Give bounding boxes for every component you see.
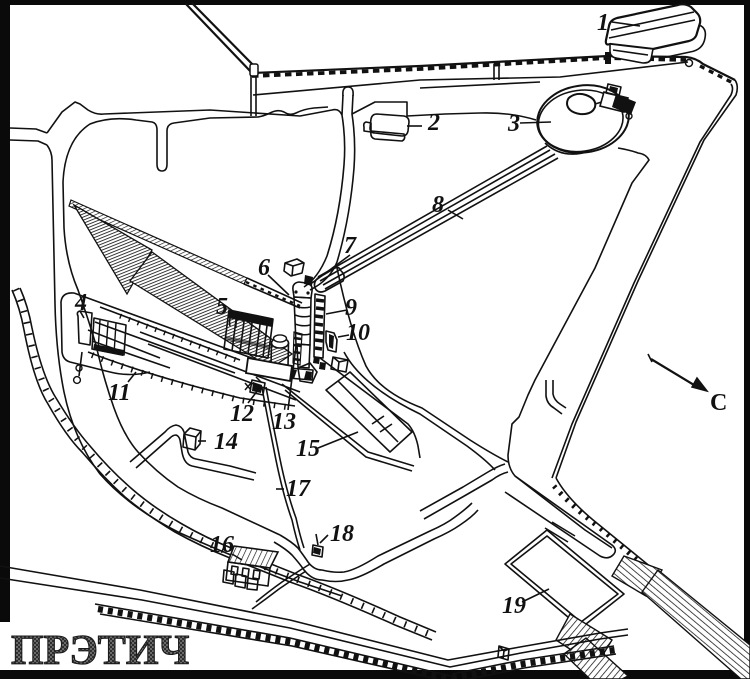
svg-text:19: 19	[502, 593, 526, 619]
svg-text:14: 14	[214, 429, 238, 455]
svg-text:2: 2	[427, 110, 440, 136]
svg-text:ПРЭТИЧ: ПРЭТИЧ	[11, 628, 189, 674]
svg-text:10: 10	[346, 320, 370, 346]
svg-text:1: 1	[597, 10, 609, 36]
svg-text:16: 16	[210, 532, 234, 558]
svg-text:18: 18	[330, 521, 354, 547]
svg-text:12: 12	[230, 401, 254, 427]
svg-text:11: 11	[108, 380, 131, 406]
svg-text:6: 6	[258, 255, 270, 281]
svg-text:15: 15	[296, 436, 320, 462]
svg-text:13: 13	[272, 409, 296, 435]
svg-text:C: C	[710, 390, 727, 416]
svg-text:8: 8	[432, 192, 444, 218]
svg-text:17: 17	[286, 476, 311, 502]
svg-text:7: 7	[344, 233, 357, 259]
svg-text:5: 5	[216, 294, 228, 320]
svg-text:3: 3	[507, 111, 520, 137]
